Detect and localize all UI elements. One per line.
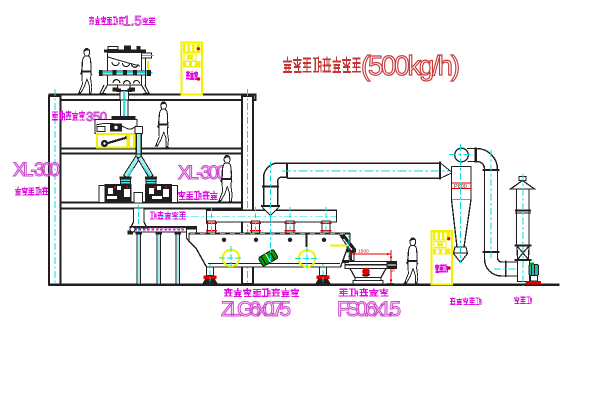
svg-text:FS0.6x1.5: FS0.6x1.5 [337,298,401,321]
svg-text:1500: 1500 [358,249,369,255]
svg-text:(500kg/h): (500kg/h) [361,50,460,81]
svg-text:ZLG6x0.75: ZLG6x0.75 [221,298,291,321]
svg-text:XL-300: XL-300 [178,163,227,184]
svg-text:1.5: 1.5 [123,14,142,29]
svg-text:XL-300: XL-300 [13,160,60,181]
